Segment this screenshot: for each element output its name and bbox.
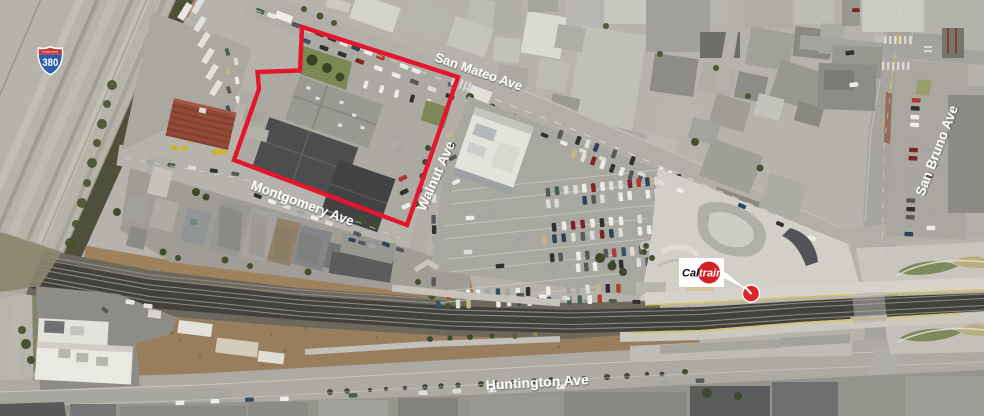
svg-text:train: train — [699, 268, 723, 280]
svg-text:INTERSTATE: INTERSTATE — [43, 50, 59, 54]
svg-text:Cal: Cal — [682, 268, 700, 280]
svg-text:380: 380 — [42, 57, 58, 69]
